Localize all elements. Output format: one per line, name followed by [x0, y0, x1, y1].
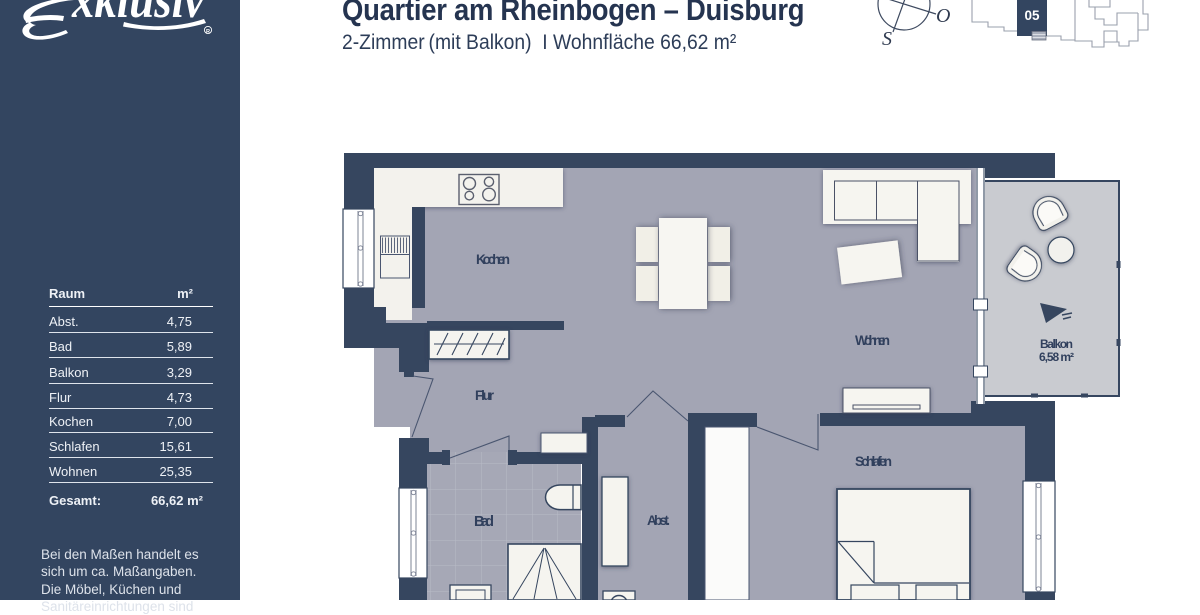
- svg-text:Kochen: Kochen: [476, 252, 510, 267]
- svg-text:Schlafen: Schlafen: [855, 454, 892, 469]
- svg-text:Bad: Bad: [474, 514, 494, 530]
- svg-text:Abst.: Abst.: [647, 513, 670, 528]
- svg-text:6,58 m²: 6,58 m²: [1039, 350, 1074, 364]
- svg-text:O: O: [936, 5, 950, 27]
- svg-text:05: 05: [1024, 8, 1040, 23]
- svg-text:Flur: Flur: [475, 388, 495, 403]
- svg-text:Wohnen: Wohnen: [855, 333, 890, 348]
- svg-text:Balkon: Balkon: [1040, 337, 1073, 351]
- svg-text:S: S: [882, 28, 892, 50]
